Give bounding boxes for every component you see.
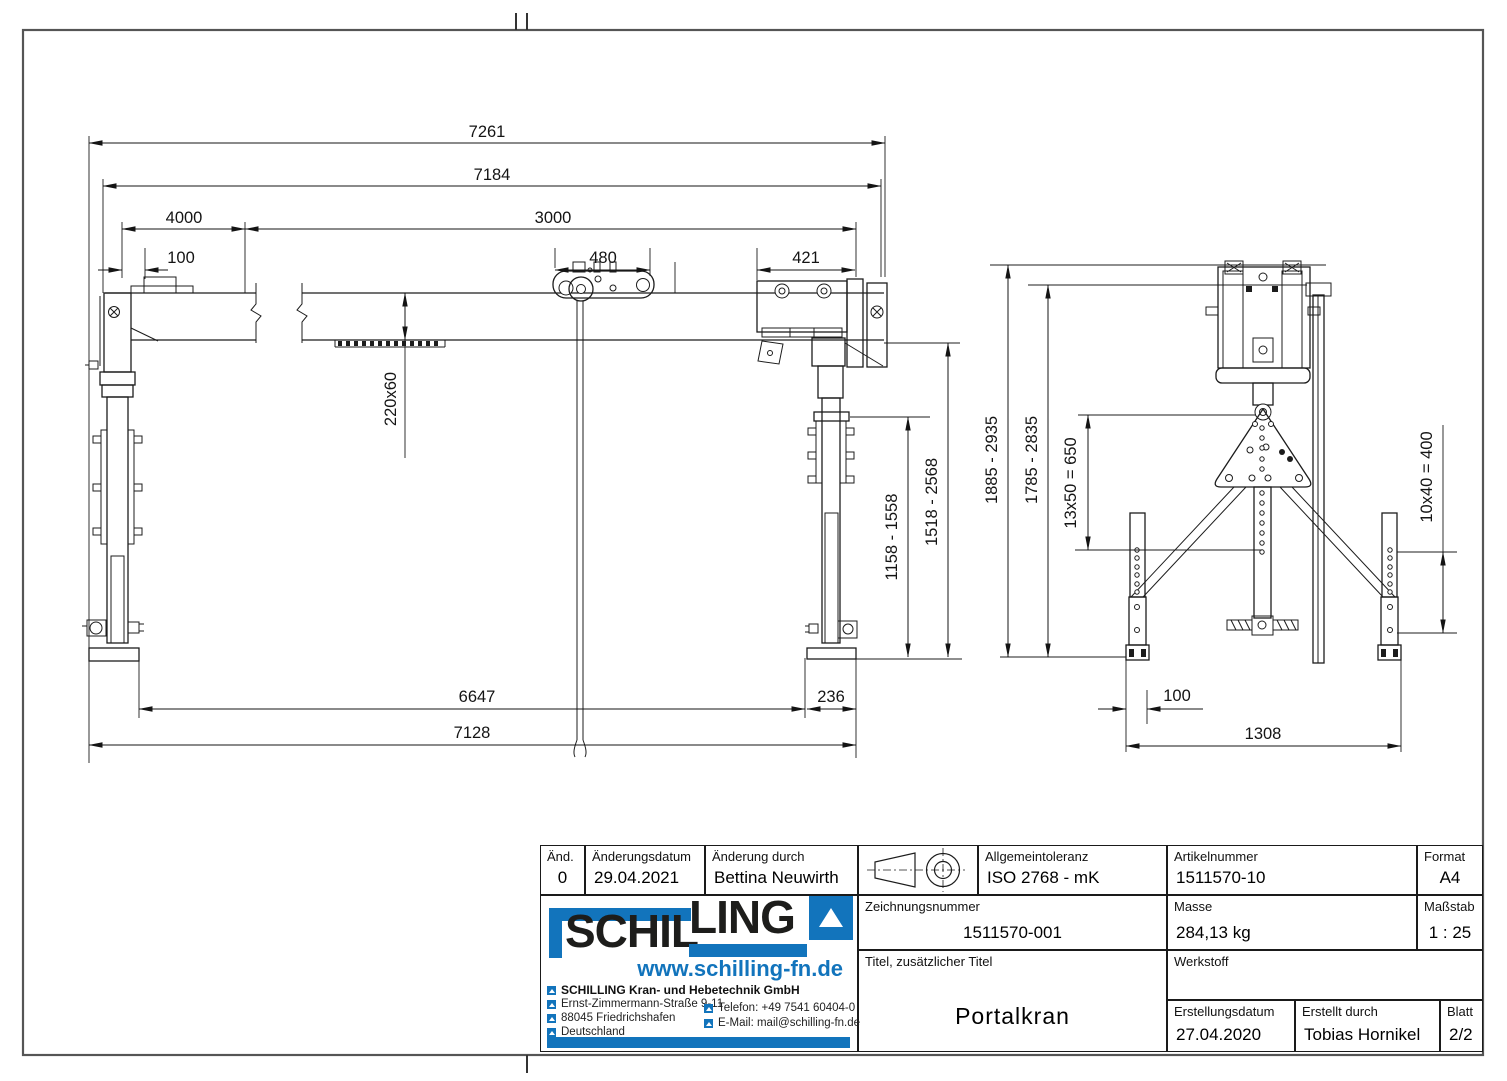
artikelnummer-label: Artikelnummer xyxy=(1174,849,1258,864)
aend-value: 0 xyxy=(541,868,584,888)
dim-220x60: 220x60 xyxy=(382,372,400,426)
masse-label: Masse xyxy=(1174,899,1212,914)
cell-aenderung-durch: Änderung durch Bettina Neuwirth xyxy=(705,845,858,895)
cell-werkstoff: Werkstoff xyxy=(1167,950,1483,1000)
dim-1518-2568: 1518 - 2568 xyxy=(923,458,941,546)
bullet-icon xyxy=(547,1014,556,1023)
werkstoff-label: Werkstoff xyxy=(1174,954,1228,969)
dim-236: 236 xyxy=(817,688,845,706)
bullet-icon xyxy=(704,1004,713,1013)
massstab-label: Maßstab xyxy=(1424,899,1475,914)
cell-titel: Titel, zusätzlicher Titel Portalkran xyxy=(858,950,1167,1052)
dim-1158-1558: 1158 - 1558 xyxy=(883,494,901,581)
artikelnummer-value: 1511570-10 xyxy=(1176,868,1266,888)
massstab-value: 1 : 25 xyxy=(1418,923,1482,943)
bullet-icon xyxy=(547,1028,556,1037)
cell-zeichnungsnummer: Zeichnungsnummer 1511570-001 xyxy=(858,895,1167,950)
side-view: 1885 - 2935 1785 - 2835 13x50 = 650 10x4… xyxy=(983,261,1457,752)
a-frame xyxy=(1126,426,1401,660)
cell-aenderungsdatum: Änderungsdatum 29.04.2021 xyxy=(585,845,705,895)
aenderungsdatum-label: Änderungsdatum xyxy=(592,849,691,864)
cell-erstellungsdatum: Erstellungsdatum 27.04.2020 xyxy=(1167,1000,1295,1052)
first-angle-projection-icon xyxy=(859,846,977,894)
dim-421: 421 xyxy=(792,249,820,267)
dim-100-foot: 100 xyxy=(1163,687,1191,705)
bullet-icon xyxy=(547,1000,556,1009)
side-dimensions: 1885 - 2935 1785 - 2835 13x50 = 650 10x4… xyxy=(983,265,1443,746)
format-value: A4 xyxy=(1418,868,1482,888)
dim-10x40: 10x40 = 400 xyxy=(1418,431,1436,522)
erstellt-durch-value: Tobias Hornikel xyxy=(1304,1025,1420,1045)
drawing-sheet: 7261 7184 4000 3000 100 480 421 220x60 1… xyxy=(0,0,1507,1081)
cell-allgemeintoleranz: Allgemeintoleranz ISO 2768 - mK xyxy=(978,845,1167,895)
dim-6647: 6647 xyxy=(459,688,496,706)
logo-text-ling: LING xyxy=(689,894,795,940)
cell-format: Format A4 xyxy=(1417,845,1483,895)
erstellt-durch-label: Erstellt durch xyxy=(1302,1004,1378,1019)
aenderungsdatum-value: 29.04.2021 xyxy=(594,868,679,888)
bullet-icon xyxy=(704,1019,713,1028)
titel-label: Titel, zusätzlicher Titel xyxy=(865,954,992,969)
dim-7184: 7184 xyxy=(474,166,511,184)
beam-end-bracket xyxy=(757,279,887,367)
dim-7261: 7261 xyxy=(469,123,506,141)
erstellungsdatum-value: 27.04.2020 xyxy=(1176,1025,1261,1045)
allgemeintoleranz-label: Allgemeintoleranz xyxy=(985,849,1088,864)
masse-value: 284,13 kg xyxy=(1176,923,1251,943)
cell-masse: Masse 284,13 kg xyxy=(1167,895,1417,950)
chain xyxy=(574,301,586,757)
dim-1885-2935: 1885 - 2935 xyxy=(983,416,1001,504)
right-leg xyxy=(805,338,883,659)
dim-4000: 4000 xyxy=(166,209,203,227)
dim-1785-2835: 1785 - 2835 xyxy=(1023,416,1041,504)
erstellungsdatum-label: Erstellungsdatum xyxy=(1174,1004,1274,1019)
dim-3000: 3000 xyxy=(535,209,572,227)
left-leg xyxy=(82,277,193,661)
zeichnungsnummer-value: 1511570-001 xyxy=(859,923,1166,943)
dim-7128: 7128 xyxy=(454,724,491,742)
dim-480: 480 xyxy=(589,249,617,267)
drawing-title: Portalkran xyxy=(859,1003,1166,1030)
column-clamp-handle xyxy=(1227,616,1298,635)
company-website: www.schilling-fn.de xyxy=(637,956,843,982)
company-block: SCHIL LING www.schilling-fn.de SCHILLING… xyxy=(540,895,858,1052)
dim-100-beam: 100 xyxy=(167,249,195,267)
aenderung-durch-value: Bettina Neuwirth xyxy=(714,868,839,888)
front-extension-lines xyxy=(89,136,962,763)
company-name: SCHILLING Kran- und Hebetechnik GmbH xyxy=(561,983,800,997)
cell-projection-symbol xyxy=(858,845,978,895)
company-phone: Telefon: +49 7541 60404-0 xyxy=(718,1002,855,1014)
side-top-assembly xyxy=(1206,261,1331,663)
aenderung-durch-label: Änderung durch xyxy=(712,849,805,864)
front-dimensions: 7261 7184 4000 3000 100 480 421 220x60 1… xyxy=(89,123,948,745)
cell-artikelnummer: Artikelnummer 1511570-10 xyxy=(1167,845,1417,895)
dim-13x50: 13x50 = 650 xyxy=(1062,437,1080,528)
cell-massstab: Maßstab 1 : 25 xyxy=(1417,895,1483,950)
cell-blatt: Blatt 2/2 xyxy=(1440,1000,1483,1052)
company-street: Ernst-Zimmermann-Straße 9-11 xyxy=(561,998,723,1010)
logo-text-schil: SCHIL xyxy=(565,908,698,954)
allgemeintoleranz-value: ISO 2768 - mK xyxy=(987,868,1099,888)
aend-label: Änd. xyxy=(547,849,574,864)
cell-erstellt-durch: Erstellt durch Tobias Hornikel xyxy=(1295,1000,1440,1052)
logo-bracket-left-icon xyxy=(549,908,562,958)
logo-bottom-bar-icon xyxy=(547,1037,850,1048)
front-view: 7261 7184 4000 3000 100 480 421 220x60 1… xyxy=(82,123,962,763)
logo-triangle-icon xyxy=(809,896,853,940)
zeichnungsnummer-label: Zeichnungsnummer xyxy=(865,899,980,914)
blatt-label: Blatt xyxy=(1447,1004,1473,1019)
cell-aend: Änd. 0 xyxy=(540,845,585,895)
company-email: E-Mail: mail@schilling-fn.de xyxy=(718,1017,860,1029)
blatt-value: 2/2 xyxy=(1449,1025,1473,1045)
format-label: Format xyxy=(1424,849,1465,864)
bullet-icon xyxy=(547,986,556,995)
dim-1308: 1308 xyxy=(1245,725,1282,743)
trolley xyxy=(553,262,654,757)
company-city: 88045 Friedrichshafen xyxy=(561,1012,675,1024)
